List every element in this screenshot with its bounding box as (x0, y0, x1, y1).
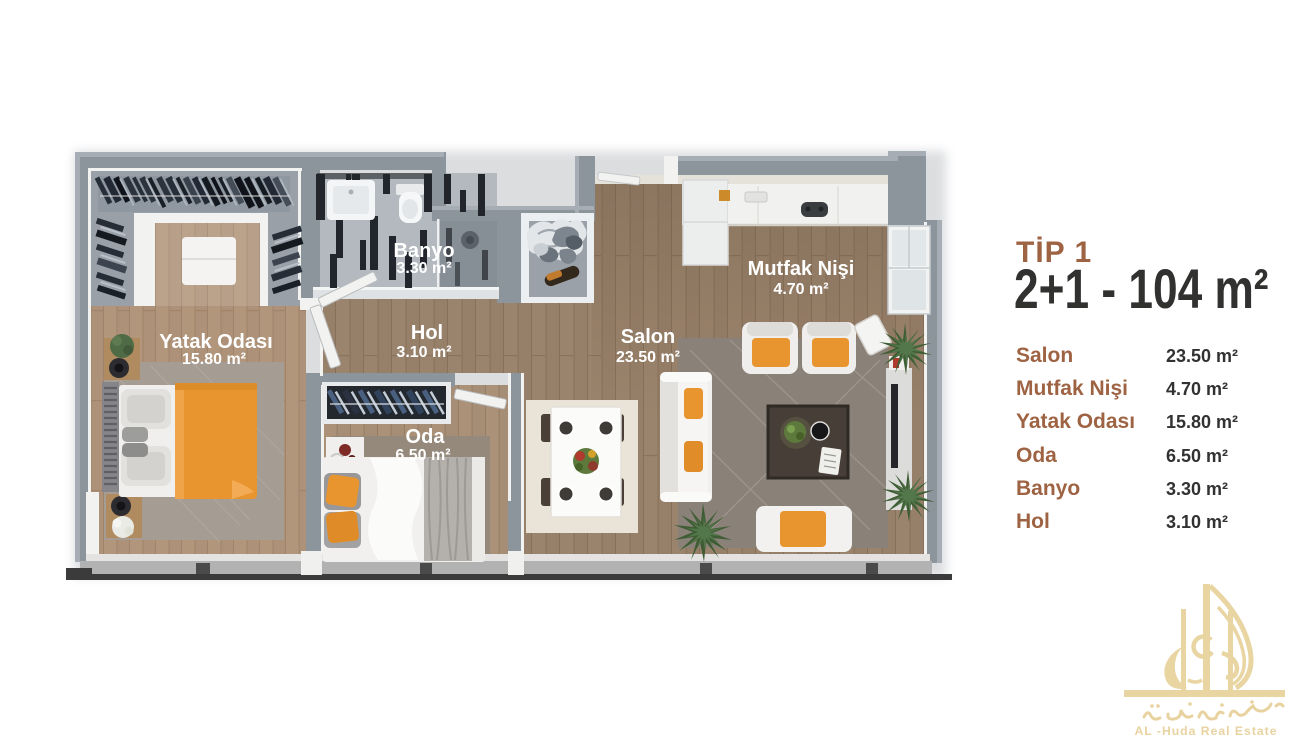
svg-text:4.70 m²: 4.70 m² (773, 281, 828, 298)
svg-text:Salon: Salon (621, 326, 675, 348)
svg-text:23.50 m²: 23.50 m² (616, 349, 680, 366)
svg-text:3.10 m²: 3.10 m² (396, 344, 451, 361)
svg-text:Oda: Oda (406, 426, 446, 448)
svg-text:Mutfak Nişi: Mutfak Nişi (748, 258, 855, 280)
svg-text:Hol: Hol (411, 322, 443, 344)
svg-text:Banyo: Banyo (393, 240, 454, 262)
svg-text:6.50 m²: 6.50 m² (395, 447, 450, 464)
svg-text:15.80 m²: 15.80 m² (182, 351, 246, 368)
svg-text:Yatak Odası: Yatak Odası (159, 331, 272, 353)
svg-text:AL -Huda Real Estate: AL -Huda Real Estate (1134, 724, 1277, 738)
svg-text:3.30 m²: 3.30 m² (396, 260, 451, 277)
